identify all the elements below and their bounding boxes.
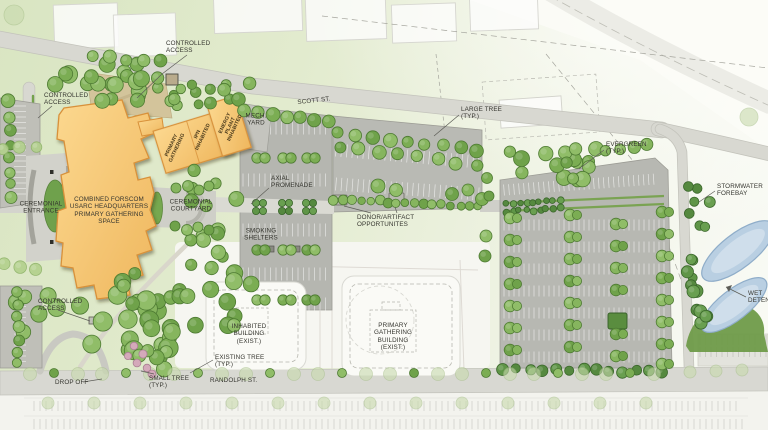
evergreen-tree [684,209,694,219]
tree-highlight [616,145,621,150]
tree [664,359,673,368]
tree-highlight [166,325,174,333]
tree-highlight [6,126,11,131]
tree-highlight [13,313,18,318]
tree-highlight [15,143,20,148]
tree-highlight [451,159,457,165]
tree-highlight [506,302,511,307]
tree-highlight [687,255,692,260]
tree-highlight [562,158,567,163]
tree-highlight [309,115,315,121]
tree-highlight [506,258,511,263]
tree-highlight [253,108,259,114]
tree-highlight [162,347,168,353]
evergreen-tree [549,198,555,204]
tree-highlight [498,365,503,370]
tree-highlight [42,290,49,297]
tree-highlight [612,352,617,357]
tree-highlight [540,148,546,154]
tree [124,352,131,359]
existing-tree [640,397,652,409]
tree-highlight [482,232,487,237]
tree-highlight [391,185,397,191]
tree [194,185,204,195]
gate-house [166,74,178,85]
parking-shelter [608,313,627,329]
tree-highlight [324,117,330,123]
tree [512,345,521,354]
tree-highlight [60,69,66,75]
tree-highlight [404,138,409,143]
tree-highlight [15,322,20,327]
tree-highlight [658,296,663,301]
tree-highlight [190,319,197,326]
tree-highlight [13,288,18,293]
tree-highlight [373,181,379,187]
evergreen-tree [692,184,702,194]
tree-highlight [552,160,559,167]
tree-highlight [612,286,617,291]
tree [187,80,196,89]
evergreen-tree [550,206,557,213]
tree-highlight [295,113,301,119]
tree [572,320,581,329]
tree-highlight [205,283,212,290]
evergreen-tree [309,199,316,206]
tree-highlight [86,72,92,78]
tree [204,181,214,191]
tree-highlight [506,324,511,329]
existing-tree [96,368,109,381]
tree-highlight [658,208,663,213]
tree-highlight [121,312,129,320]
tree-highlight [702,312,707,317]
tree-highlight [658,340,663,345]
tree-highlight [182,290,189,297]
tree-highlight [413,152,418,157]
tree-highlight [170,95,175,100]
tree [572,254,581,263]
tree-highlight [566,321,571,326]
tree [6,179,16,189]
tree-highlight [229,311,236,318]
evergreen-tree [544,198,550,204]
tree [194,369,203,378]
tree-highlight [566,299,571,304]
tree-highlight [393,149,398,154]
tree-highlight [303,246,308,251]
tree [465,202,474,211]
tree-highlight [253,154,258,159]
tree-highlight [506,346,511,351]
tree-highlight [0,259,5,264]
existing-tree [364,397,376,409]
tree [347,195,356,204]
tree-highlight [207,85,212,90]
tree-highlight [127,298,133,304]
tree-highlight [658,274,663,279]
tree-highlight [439,140,444,145]
tree-highlight [311,154,316,159]
tree-highlight [516,153,523,160]
evergreen-tree [302,207,309,214]
tree-highlight [183,226,188,231]
tree [266,369,275,378]
evergreen-tree [252,199,259,206]
tree-highlight [132,95,138,101]
tree-highlight [592,365,597,370]
tree-highlight [590,143,597,150]
evergreen-tree [515,207,521,213]
existing-tree [502,397,514,409]
tree-highlight [618,368,623,373]
tree [204,225,214,235]
tree-highlight [89,52,94,57]
tree-highlight [287,246,292,251]
existing-tree [456,368,469,381]
evergreen-tree [557,197,564,204]
tree [328,196,338,206]
tree-highlight [434,154,440,160]
tree [572,276,581,285]
tree-highlight [184,182,189,187]
tree-highlight [506,236,511,241]
site-plan-drawing [0,0,768,430]
tree-highlight [456,143,462,149]
stormwater-forebay-pond [686,211,768,352]
evergreen-tree [690,197,699,206]
existing-tree [710,365,722,377]
existing-tree [600,368,613,381]
tree-highlight [261,296,266,301]
tree-highlight [206,99,211,104]
tree-highlight [33,308,40,315]
tree-highlight [683,267,688,272]
tree-highlight [566,277,571,282]
existing-tree [594,397,606,409]
tree-highlight [245,278,252,285]
tree-highlight [15,336,20,341]
tree-highlight [119,281,125,287]
tree-highlight [96,314,105,323]
tree-highlight [311,296,316,301]
tree-highlight [483,174,488,179]
tree-highlight [231,193,238,200]
tree [618,219,627,228]
tree-highlight [351,131,357,137]
evergreen-tree [536,199,542,205]
tree [193,222,203,232]
tree-highlight [202,201,207,206]
existing-tree [740,108,758,126]
tree [664,295,673,304]
tree-highlight [658,318,663,323]
tree-highlight [571,144,577,150]
tree-highlight [689,287,695,293]
tree-highlight [156,56,162,62]
existing-tree [648,368,661,381]
tree-highlight [109,79,116,86]
tree-highlight [696,307,702,313]
tree-highlight [506,147,511,152]
existing-tree [360,368,373,381]
tree-highlight [207,263,213,269]
tree [392,199,400,207]
existing-tree [216,368,229,381]
tree [122,369,131,378]
existing-tree [240,368,253,381]
tree-highlight [506,280,511,285]
existing-tree [576,368,589,381]
tree-highlight [130,269,135,274]
tree [626,369,635,378]
tree [358,197,366,205]
tree [618,329,627,338]
tree-highlight [569,174,574,179]
evergreen-tree [510,201,517,208]
existing-tree [528,368,541,381]
tree [437,200,446,209]
tree [512,323,521,332]
tree-highlight [368,133,374,139]
tree-highlight [566,343,571,348]
tree [12,358,21,367]
tree-highlight [481,252,486,257]
tree-highlight [221,295,229,303]
tree-highlight [49,79,56,86]
tree [572,210,581,219]
site-plan: CONTROLLED ACCESS CONTROLLED ACCESS CONT… [0,0,768,430]
tree-highlight [123,333,131,341]
tree-highlight [566,233,571,238]
tree-highlight [14,301,19,306]
tree-highlight [135,73,142,80]
tree-highlight [420,140,425,145]
evergreen-tree [259,207,266,214]
tree-highlight [353,143,359,149]
tree-highlight [139,293,148,302]
existing-tree [456,397,468,409]
tree-highlight [658,230,663,235]
tree-highlight [506,214,511,219]
existing-tree [24,368,37,381]
existing-tree [684,366,696,378]
tree [367,197,375,205]
evergreen-tree [557,204,564,211]
tree-highlight [15,263,21,269]
tree-highlight [706,198,711,203]
tree-highlight [261,246,266,251]
existing-tree [272,397,284,409]
tree [618,241,627,250]
tree-highlight [566,255,571,260]
tree [401,199,409,207]
tree [133,359,141,367]
tree-highlight [122,56,127,61]
tree [512,213,521,222]
tree-highlight [166,293,172,299]
evergreen-tree [684,182,694,192]
tree-highlight [464,186,469,191]
tree-highlight [287,154,292,159]
existing-tree [42,397,54,409]
existing-tree [410,397,422,409]
evergreen-tree [302,199,309,206]
tree-highlight [303,296,308,301]
tree-highlight [612,220,617,225]
tree-highlight [630,143,636,149]
existing-tree [134,397,146,409]
existing-tree [288,368,301,381]
existing-tree [504,368,517,381]
tree-highlight [612,330,617,335]
tree-highlight [198,235,204,241]
tree [572,342,581,351]
tree [572,232,581,241]
evergreen-tree [565,366,574,375]
tree [410,199,419,208]
evergreen-tree [252,207,259,214]
existing-tree [548,397,560,409]
existing-tree [736,364,748,376]
tree-highlight [279,246,284,251]
tree [618,285,627,294]
tree [176,84,186,94]
tree-highlight [145,322,153,330]
evergreen-tree [524,207,530,213]
evergreen-tree [285,207,292,214]
tree [130,342,138,350]
tree-highlight [31,265,36,270]
tree [148,370,156,378]
tree-highlight [122,71,128,77]
tree-highlight [7,193,12,198]
tree-highlight [229,320,235,326]
tree-highlight [85,337,93,345]
existing-tree [168,368,181,381]
tree-highlight [336,143,341,148]
tree-highlight [14,349,19,354]
tree-highlight [139,56,145,62]
tree-highlight [261,154,266,159]
evergreen-tree [530,208,537,215]
flag-post [50,240,54,244]
flag-post [50,170,54,174]
existing-tree [88,397,100,409]
tree-highlight [601,147,606,152]
tree-highlight [311,246,316,251]
tree [618,263,627,272]
tree [554,369,563,378]
evergreen-tree [700,222,709,231]
evergreen-tree [518,200,524,206]
tree [512,257,521,266]
tree-highlight [658,252,663,257]
existing-tree [432,368,445,381]
existing-tree [384,368,397,381]
tree [446,202,454,210]
tree-highlight [245,79,251,85]
tree-highlight [239,106,245,112]
tree-highlight [186,196,192,202]
existing-tree [4,5,24,25]
tree [194,100,203,109]
tree-highlight [253,296,258,301]
tree-highlight [105,52,111,58]
evergreen-tree [278,199,285,206]
tree [50,369,59,378]
tree [170,221,180,231]
tree [512,279,521,288]
evergreen-tree [542,205,548,211]
tree-highlight [219,85,225,91]
tree-highlight [333,128,338,133]
evergreen-tree [259,199,266,206]
tree [512,301,521,310]
tree-highlight [612,242,617,247]
tree [664,251,673,260]
evergreen-tree [285,199,292,206]
tree-highlight [385,135,391,141]
tree-highlight [233,94,239,100]
tree-highlight [517,168,523,174]
tree-highlight [6,169,11,174]
tree [664,229,673,238]
tree [338,195,348,205]
tree-highlight [477,194,483,200]
tree [572,298,581,307]
tree [664,317,673,326]
tree-highlight [187,261,192,266]
tree-highlight [97,95,104,102]
tree [171,183,181,193]
tree [484,191,494,201]
tree-highlight [374,147,380,153]
existing-tree [318,397,330,409]
tree-highlight [612,264,617,269]
existing-tree [226,397,238,409]
tree-highlight [227,275,235,283]
tree [512,235,521,244]
tree-highlight [279,296,284,301]
tree-highlight [558,172,565,179]
tree-highlight [5,114,10,119]
tree-highlight [186,236,191,241]
tree-highlight [213,247,220,254]
tree-highlight [3,96,9,102]
tree-highlight [303,154,308,159]
tree-highlight [642,140,648,146]
tree-highlight [282,113,288,119]
tree [664,339,673,348]
tree-highlight [473,161,478,166]
tree [618,351,627,360]
tree-highlight [560,148,566,154]
tree-highlight [566,211,571,216]
tree-highlight [287,296,292,301]
tree [482,369,491,378]
tree [664,273,673,282]
tree-highlight [74,299,82,307]
tree [338,369,347,378]
east-parking-lot [500,158,672,368]
tree-highlight [189,166,195,172]
tree-highlight [268,109,274,115]
tree-highlight [658,360,663,365]
tree-highlight [471,146,477,152]
evergreen-tree [278,207,285,214]
existing-tree [312,368,325,381]
